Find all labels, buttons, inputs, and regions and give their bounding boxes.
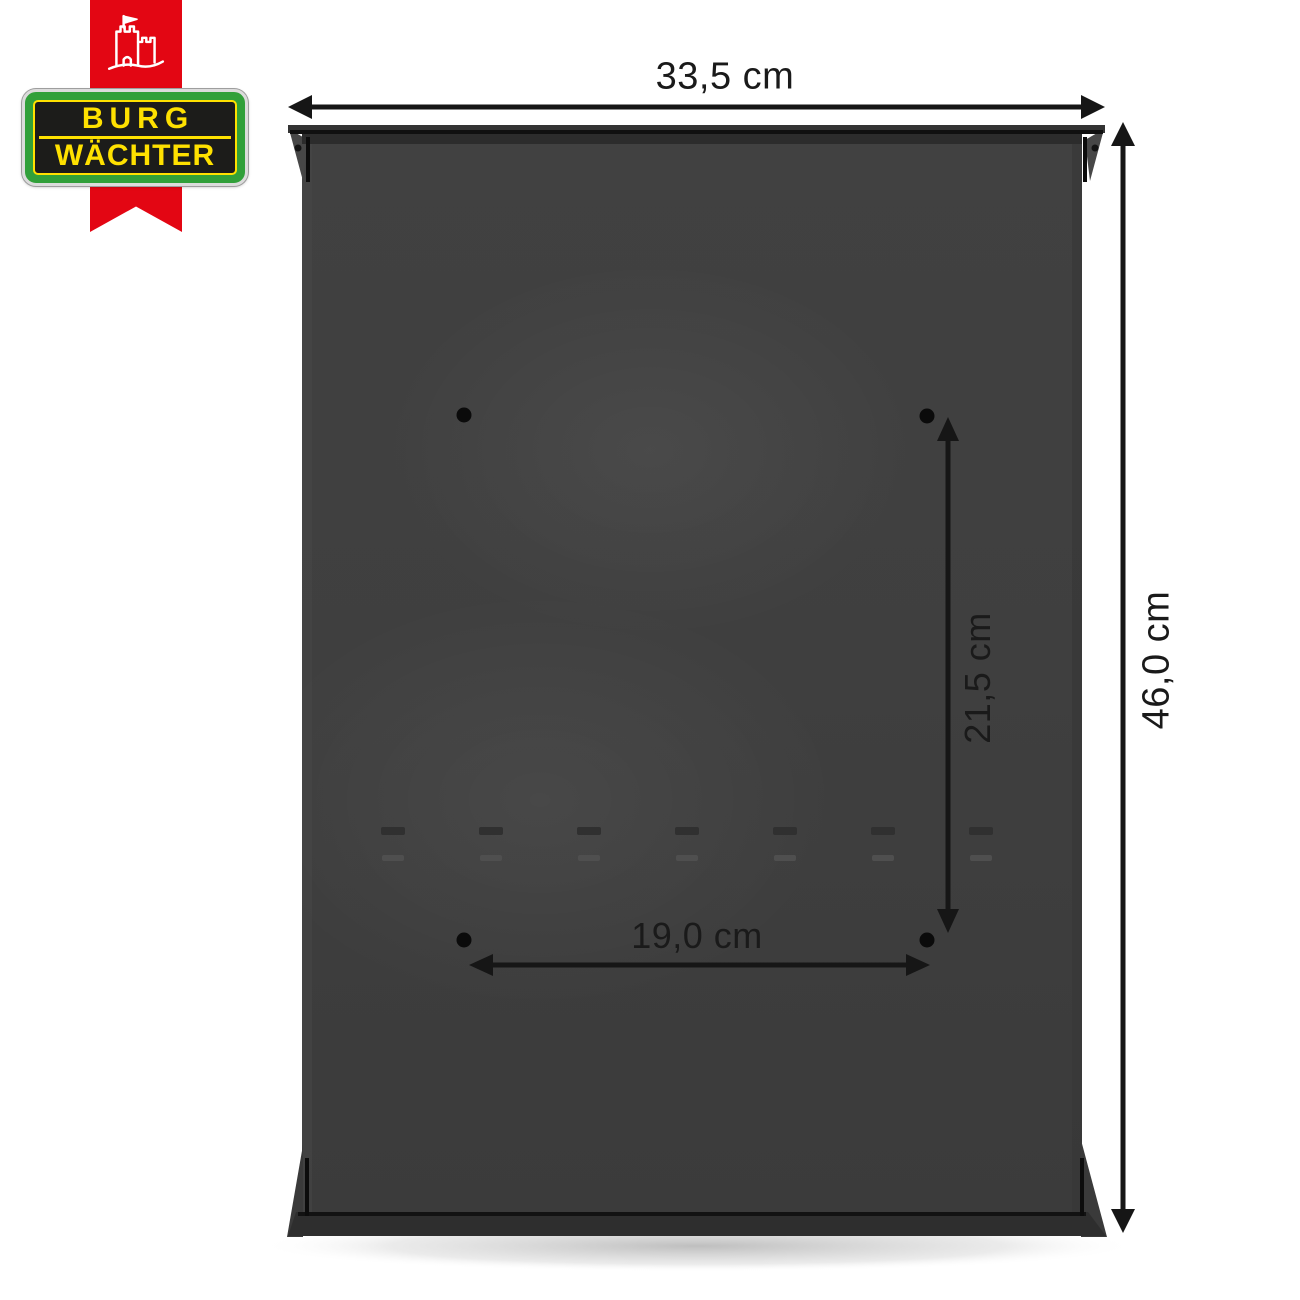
product-dimension-image: 33,5 cm 46,0 cm 21,5 cm 19,0 cm BURG WÄC… [0,0,1300,1300]
panel-sheen [380,260,920,640]
panel-right-shade [1072,138,1082,1218]
mounting-hole-top-right [920,409,935,424]
corner-bracket-top-right [1083,137,1087,182]
mounting-hole-top-left [457,408,472,423]
corner-screw-top-left [295,145,302,152]
corner-bracket-bottom-left [305,1158,309,1216]
width-dimension-label: 33,5 cm [656,56,795,99]
mailbox-rear-view-illustration [0,0,1300,1300]
hole-spacing-horizontal-label: 19,0 cm [631,915,763,957]
bottom-band-shadow-line [298,1212,1086,1216]
dimension-arrow-width [288,95,1105,119]
panel-left-highlight [302,138,312,1218]
hole-spacing-vertical-label: 21,5 cm [957,612,999,744]
dimension-arrow-height [1111,122,1135,1233]
mounting-hole-bottom-right [920,933,935,948]
lid-strip-lower [302,134,1082,144]
mounting-hole-bottom-left [457,933,472,948]
height-dimension-label: 46,0 cm [1136,591,1179,730]
lid-strip-shadow-line [290,130,1103,134]
corner-bracket-bottom-right [1080,1158,1084,1216]
castle-icon [103,8,169,80]
top-flange-wing-right [1085,129,1104,181]
corner-bracket-top-left [306,137,310,182]
corner-screw-top-right [1092,145,1099,152]
brand-badge: BURG WÄCHTER [22,89,248,186]
brand-name-line2: WÄCHTER [55,141,215,171]
brand-name-line1: BURG [76,104,194,134]
brand-badge-panel: BURG WÄCHTER [33,100,237,175]
